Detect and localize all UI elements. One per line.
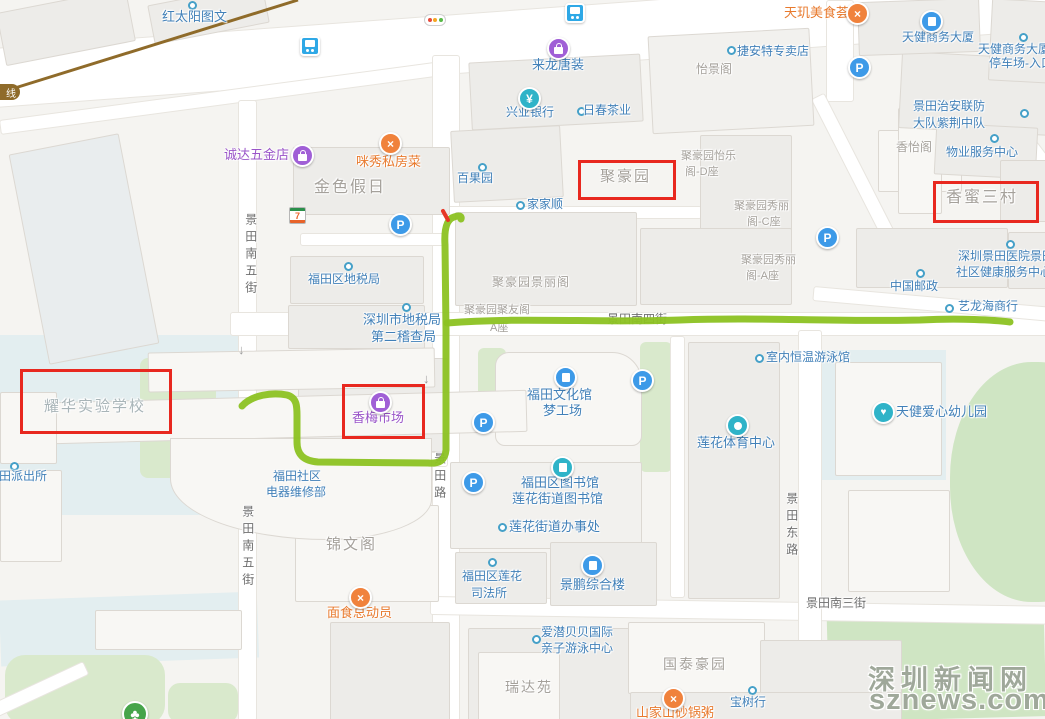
kindergarten-poi-icon[interactable]: ♥ bbox=[872, 401, 895, 424]
poi-label: 亲子游泳中心 bbox=[541, 642, 613, 656]
highlight-box-yaohua bbox=[20, 369, 172, 434]
area-label: 聚豪园秀丽 bbox=[734, 200, 789, 213]
poi-dot[interactable] bbox=[916, 269, 925, 278]
poi-label: 天玑美食荟 bbox=[784, 6, 849, 21]
street-label-jingtian-east: 景田东路 bbox=[784, 492, 798, 560]
poi-label: 深圳市地税局 bbox=[363, 313, 441, 328]
poi-label: 景鹏综合楼 bbox=[560, 578, 625, 593]
parking-icon[interactable]: P bbox=[816, 226, 839, 249]
street-label-jingtian-rd: 景田路 bbox=[432, 452, 446, 503]
poi-dot[interactable] bbox=[516, 201, 525, 210]
poi-label: 天健商务大厦 bbox=[978, 43, 1045, 57]
poi-label: 日春茶业 bbox=[583, 104, 631, 118]
tree-strip bbox=[640, 342, 672, 472]
area-label: 阁-A座 bbox=[746, 270, 779, 283]
area-label: 金色假日 bbox=[314, 179, 386, 197]
area-label: 香怡阁 bbox=[896, 141, 932, 155]
poi-label: 中国邮政 bbox=[890, 280, 938, 294]
poi-dot[interactable] bbox=[344, 262, 353, 271]
poi-label: 电器维修部 bbox=[266, 486, 326, 500]
parking-icon[interactable]: P bbox=[462, 471, 485, 494]
seven-eleven-icon[interactable]: 7 bbox=[289, 207, 306, 224]
restaurant-poi-icon-shanjia[interactable]: × bbox=[662, 687, 685, 710]
area-label: 锦文阁 bbox=[326, 536, 377, 553]
poi-label: 天健商务大厦 bbox=[902, 31, 974, 45]
building-jingli bbox=[455, 212, 637, 306]
area-label: 阁-D座 bbox=[685, 166, 719, 179]
poi-label: 莲花街道图书馆 bbox=[512, 492, 603, 507]
restaurant-poi-icon-mianshi[interactable]: × bbox=[349, 586, 372, 609]
poi-label: 百果园 bbox=[457, 172, 493, 186]
poi-label: 室内恒温游泳馆 bbox=[766, 351, 850, 365]
poi-label: 大队紫荆中队 bbox=[913, 117, 985, 131]
shopping-poi-icon-lailong[interactable] bbox=[547, 37, 570, 60]
library-poi-icon[interactable] bbox=[551, 456, 574, 479]
watermark-line2: sznews.com bbox=[869, 684, 1045, 717]
sports-field-oval bbox=[950, 362, 1045, 602]
poi-label: 莲花街道办事处 bbox=[509, 520, 600, 535]
poi-label: 福田区莲花 bbox=[462, 570, 522, 584]
road-lane-jinse bbox=[300, 233, 447, 246]
area-label: 聚豪园怡乐 bbox=[681, 150, 736, 163]
area-label: 瑞达苑 bbox=[505, 679, 553, 695]
poi-label: 第二稽查局 bbox=[371, 330, 436, 345]
building bbox=[848, 490, 950, 592]
building bbox=[95, 610, 242, 650]
poi-label: 天健爱心幼儿园 bbox=[896, 405, 987, 420]
poi-dot[interactable] bbox=[488, 558, 497, 567]
highlight-box-xiangmi bbox=[933, 181, 1039, 223]
map-canvas[interactable]: 线 × × × × ¥ P P P P P P ♥ 7 ♣ ↓ ↓ 红太阳图文 … bbox=[0, 0, 1045, 719]
poi-dot[interactable] bbox=[1020, 109, 1029, 118]
restaurant-poi-icon-mixiu[interactable]: × bbox=[379, 132, 402, 155]
poi-label: 司法所 bbox=[471, 587, 507, 601]
restaurant-poi-icon-tianji[interactable]: × bbox=[846, 2, 869, 25]
poi-label: 诚达五金店 bbox=[224, 148, 289, 163]
poi-dot[interactable] bbox=[990, 134, 999, 143]
street-label-jtn3: 景田南三街 bbox=[806, 597, 866, 611]
parking-icon[interactable]: P bbox=[631, 369, 654, 392]
building-jingpeng bbox=[550, 542, 657, 606]
poi-label: 咪秀私房菜 bbox=[356, 155, 421, 170]
area-label: 国泰豪园 bbox=[663, 656, 727, 672]
poi-dot[interactable] bbox=[945, 304, 954, 313]
poi-dot[interactable] bbox=[748, 686, 757, 695]
street-label-jtn5-lower: 景田南五街 bbox=[240, 505, 254, 590]
poi-dot[interactable] bbox=[727, 46, 736, 55]
parking-icon[interactable]: P bbox=[848, 56, 871, 79]
poi-label: 景田派出所 bbox=[0, 470, 47, 484]
poi-label: 捷安特专卖店 bbox=[737, 45, 809, 59]
poi-label: 福田文化馆 bbox=[527, 388, 592, 403]
poi-label: 宝树行 bbox=[730, 696, 766, 710]
area-label: 聚豪园秀丽 bbox=[741, 254, 796, 267]
poi-label: 福田区地税局 bbox=[308, 273, 380, 287]
poi-dot[interactable] bbox=[532, 635, 541, 644]
area-label: 聚豪园景丽阁 bbox=[492, 276, 570, 290]
building bbox=[9, 133, 160, 364]
area-label: 怡景阁 bbox=[696, 63, 732, 77]
street-label-jtn4: 景田南四街 bbox=[607, 313, 667, 327]
parking-icon[interactable]: P bbox=[389, 213, 412, 236]
highlight-box-xiangmei bbox=[342, 384, 425, 439]
poi-label: 红太阳图文 bbox=[162, 10, 227, 25]
poi-dot[interactable] bbox=[755, 354, 764, 363]
highlight-box-juhaoyuan bbox=[578, 160, 676, 200]
building-poi-icon-jingpeng[interactable] bbox=[581, 554, 604, 577]
traffic-light-icon bbox=[424, 14, 446, 26]
poi-label: 福田社区 bbox=[273, 470, 321, 484]
building bbox=[330, 622, 450, 719]
building-baiguoyuan bbox=[450, 125, 564, 203]
parking-icon[interactable]: P bbox=[472, 411, 495, 434]
culture-poi-icon-wenhua[interactable] bbox=[554, 366, 577, 389]
poi-label: 艺龙海商行 bbox=[958, 300, 1018, 314]
poi-label: 莲花体育中心 bbox=[697, 436, 775, 451]
bank-poi-icon-xingye[interactable]: ¥ bbox=[518, 87, 541, 110]
poi-label: 梦工场 bbox=[543, 404, 582, 419]
poi-label: 物业服务中心 bbox=[946, 146, 1018, 160]
poi-label: 停车场-入口 bbox=[989, 57, 1045, 71]
building-sports-center bbox=[688, 342, 780, 599]
area-label: 聚豪园聚友阁 bbox=[464, 304, 530, 317]
poi-dot[interactable] bbox=[1019, 33, 1028, 42]
sports-poi-icon[interactable] bbox=[726, 414, 749, 437]
building-poi-icon-tianjian[interactable] bbox=[920, 10, 943, 33]
oneway-arrow-icon: ↓ bbox=[238, 342, 245, 357]
road-lane-sports bbox=[670, 336, 685, 598]
building bbox=[0, 470, 62, 562]
park-bottom-left-2 bbox=[168, 683, 238, 719]
area-label: A座 bbox=[490, 322, 508, 335]
poi-label: 来龙唐装 bbox=[532, 58, 584, 73]
poi-label: 家家顺 bbox=[527, 198, 563, 212]
shopping-poi-icon-chengda[interactable] bbox=[291, 144, 314, 167]
poi-dot[interactable] bbox=[498, 523, 507, 532]
poi-label: 爱潜贝贝国际 bbox=[541, 626, 613, 640]
poi-dot[interactable] bbox=[1006, 240, 1015, 249]
poi-dot[interactable] bbox=[402, 303, 411, 312]
poi-label: 社区健康服务中心 bbox=[956, 266, 1045, 280]
building bbox=[857, 0, 981, 56]
metro-station-icon[interactable] bbox=[565, 3, 585, 23]
poi-label: 深圳景田医院景田 bbox=[958, 250, 1045, 264]
area-label: 阁-C座 bbox=[747, 216, 781, 229]
bus-station-icon[interactable] bbox=[300, 36, 320, 56]
rail-line-icon[interactable]: 线 bbox=[0, 84, 20, 100]
poi-label: 景田治安联防 bbox=[913, 100, 985, 114]
street-label-jtn5-upper: 景田南五街 bbox=[243, 213, 257, 298]
